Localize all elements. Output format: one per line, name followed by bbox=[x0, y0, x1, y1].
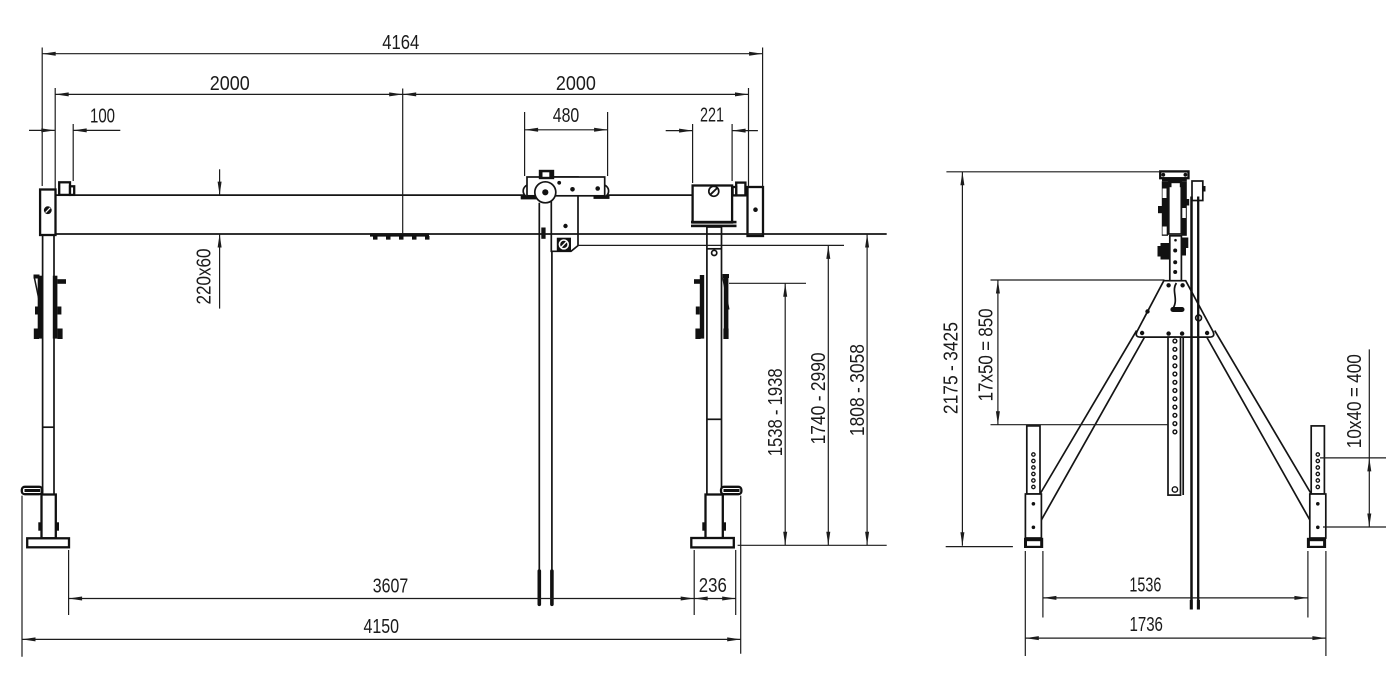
svg-text:480: 480 bbox=[553, 105, 580, 127]
svg-text:10x40 = 400: 10x40 = 400 bbox=[1344, 354, 1366, 448]
svg-text:4164: 4164 bbox=[382, 32, 419, 54]
svg-text:100: 100 bbox=[90, 106, 115, 128]
svg-text:1736: 1736 bbox=[1129, 614, 1163, 636]
svg-text:221: 221 bbox=[700, 105, 724, 127]
svg-text:1808 - 3058: 1808 - 3058 bbox=[847, 344, 869, 436]
svg-text:2175 - 3425: 2175 - 3425 bbox=[941, 322, 963, 414]
svg-text:236: 236 bbox=[699, 575, 727, 597]
svg-text:220x60: 220x60 bbox=[194, 249, 216, 305]
svg-text:2000: 2000 bbox=[556, 73, 596, 95]
svg-text:1538 - 1938: 1538 - 1938 bbox=[765, 368, 787, 456]
svg-text:17x50 = 850: 17x50 = 850 bbox=[976, 308, 998, 401]
svg-text:3607: 3607 bbox=[373, 576, 409, 598]
svg-text:1536: 1536 bbox=[1129, 575, 1161, 597]
svg-text:4150: 4150 bbox=[364, 616, 400, 638]
svg-text:2000: 2000 bbox=[210, 73, 250, 95]
svg-text:1740 - 2990: 1740 - 2990 bbox=[808, 352, 830, 444]
